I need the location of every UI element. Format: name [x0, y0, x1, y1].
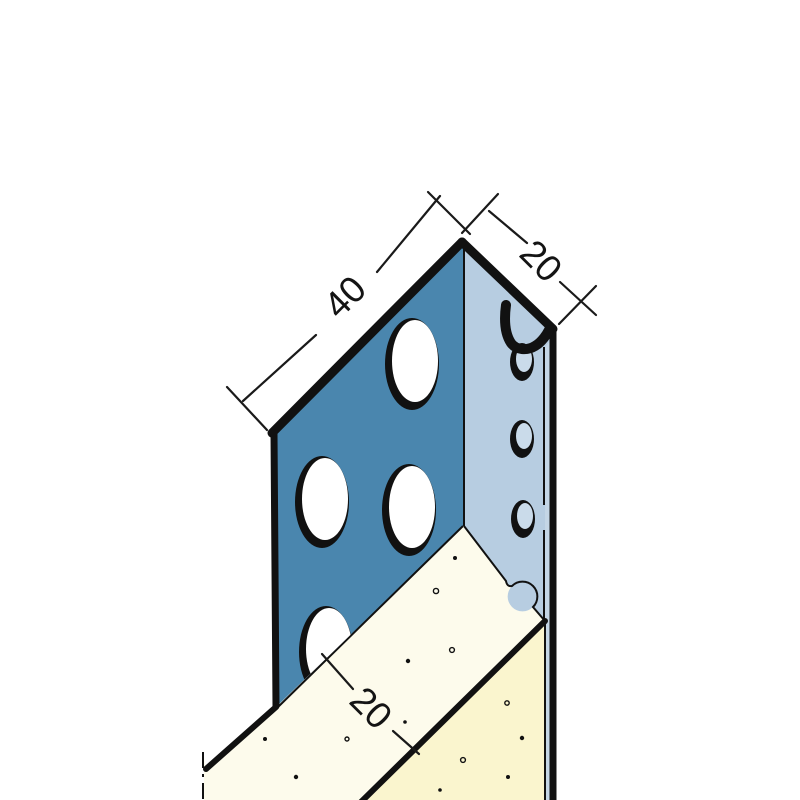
oval-slot	[510, 420, 534, 458]
technical-drawing-canvas: 40 20 20	[0, 0, 800, 800]
flange-left-edge	[274, 433, 276, 706]
perforation-hole	[385, 318, 439, 410]
profile-illustration: 40 20 20	[0, 0, 800, 800]
face-oval-slots	[510, 343, 535, 538]
perforation-hole	[382, 464, 436, 556]
oval-slot	[511, 500, 535, 538]
perforation-hole	[295, 456, 349, 548]
